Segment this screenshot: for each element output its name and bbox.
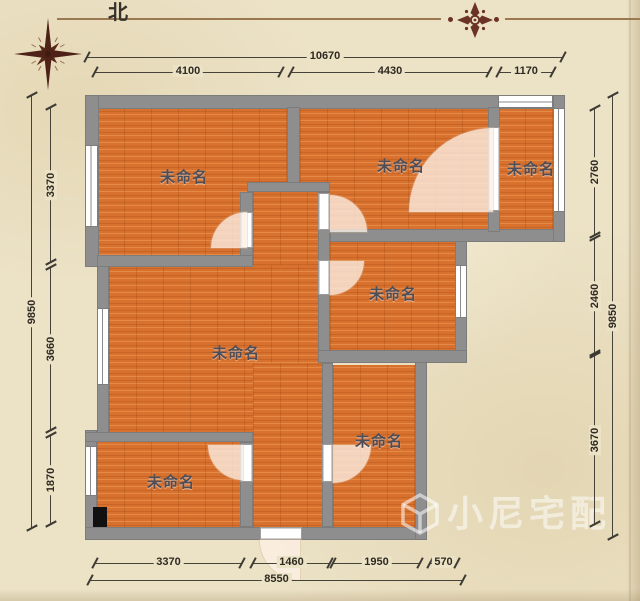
dimension-line-bottom-4: 570: [430, 563, 457, 564]
room-label-bottom-left: 未命名: [123, 471, 219, 492]
dimension-line-left-2: 3660: [50, 267, 51, 430]
room-label-top-right: 未命名: [483, 158, 579, 179]
wall: [85, 527, 427, 540]
dimension-line-right-2: 2460: [594, 238, 595, 353]
dimension-value: 10670: [307, 50, 344, 62]
dimension-line-top-total: 10670: [87, 57, 563, 58]
entry-door-opening: [260, 527, 302, 540]
dimension-value: 4100: [173, 65, 203, 77]
room-label-middle-right: 未命名: [345, 283, 441, 304]
fixture-block: [93, 507, 107, 527]
dimension-value: 9850: [26, 296, 38, 326]
watermark-text: 小尼宅配: [447, 493, 611, 535]
room-label-top-left: 未命名: [136, 166, 232, 187]
dimension-value: 1460: [276, 556, 306, 568]
dimension-line-right-3: 3670: [594, 355, 595, 524]
dimension-value: 2460: [589, 280, 601, 310]
dimension-value: 8550: [261, 573, 291, 585]
window: [455, 265, 467, 318]
window: [85, 446, 97, 496]
dimension-line-bottom-3: 1950: [333, 563, 420, 564]
compass-rose-icon: [10, 14, 86, 94]
door-opening: [318, 260, 330, 295]
decor-dot-left: [448, 17, 453, 22]
dimension-value: 2760: [589, 156, 601, 186]
dimension-value: 3370: [153, 556, 183, 568]
dimension-value: 1170: [511, 65, 541, 77]
dimension-line-left-total: 9850: [31, 95, 32, 528]
page-edge-shadow-right: [626, 0, 640, 601]
dimension-line-bottom-total: 8550: [90, 580, 463, 581]
dimension-line-right-1: 2760: [594, 108, 595, 235]
wall: [318, 350, 467, 363]
north-label: 北: [108, 0, 128, 25]
dimension-value: 9850: [607, 301, 619, 331]
dimension-value: 1870: [45, 464, 57, 494]
wall: [85, 432, 253, 442]
room-floor-corridor: [253, 363, 322, 529]
window: [85, 145, 98, 227]
watermark-logo-icon: [399, 492, 441, 536]
ornament-icon: [456, 1, 494, 39]
floorplan-page: 北: [0, 0, 640, 601]
watermark: 小尼宅配: [399, 492, 611, 536]
dimension-line-bottom-2: 1460: [253, 563, 330, 564]
window: [498, 95, 553, 108]
dimension-line-top-2: 4430: [291, 72, 489, 73]
room-label-top-middle: 未命名: [353, 155, 449, 176]
dimension-value: 1950: [361, 556, 391, 568]
dimension-line-bottom-1: 3370: [95, 563, 242, 564]
wall: [287, 107, 300, 192]
dimension-value: 570: [431, 556, 455, 568]
decor-rule-right: [505, 18, 640, 20]
dimension-line-left-1: 3370: [50, 107, 51, 262]
wall: [97, 255, 253, 267]
dimension-value: 3670: [589, 424, 601, 454]
dimension-line-right-total: 9850: [612, 95, 613, 537]
room-label-living: 未命名: [188, 342, 284, 363]
dimension-value: 3370: [45, 169, 57, 199]
dimension-line-top-3: 1170: [499, 72, 553, 73]
room-label-bottom-right: 未命名: [331, 430, 427, 451]
page-edge-shadow-bottom: [0, 589, 640, 601]
dimension-value: 4430: [375, 65, 405, 77]
door-opening: [318, 193, 330, 230]
room-floor-hall: [253, 190, 318, 268]
window: [97, 308, 109, 385]
wall: [247, 182, 330, 192]
dimension-line-left-3: 1870: [50, 435, 51, 524]
decor-dot-right: [494, 17, 499, 22]
dimension-line-top-1: 4100: [95, 72, 281, 73]
dimension-value: 3660: [45, 333, 57, 363]
